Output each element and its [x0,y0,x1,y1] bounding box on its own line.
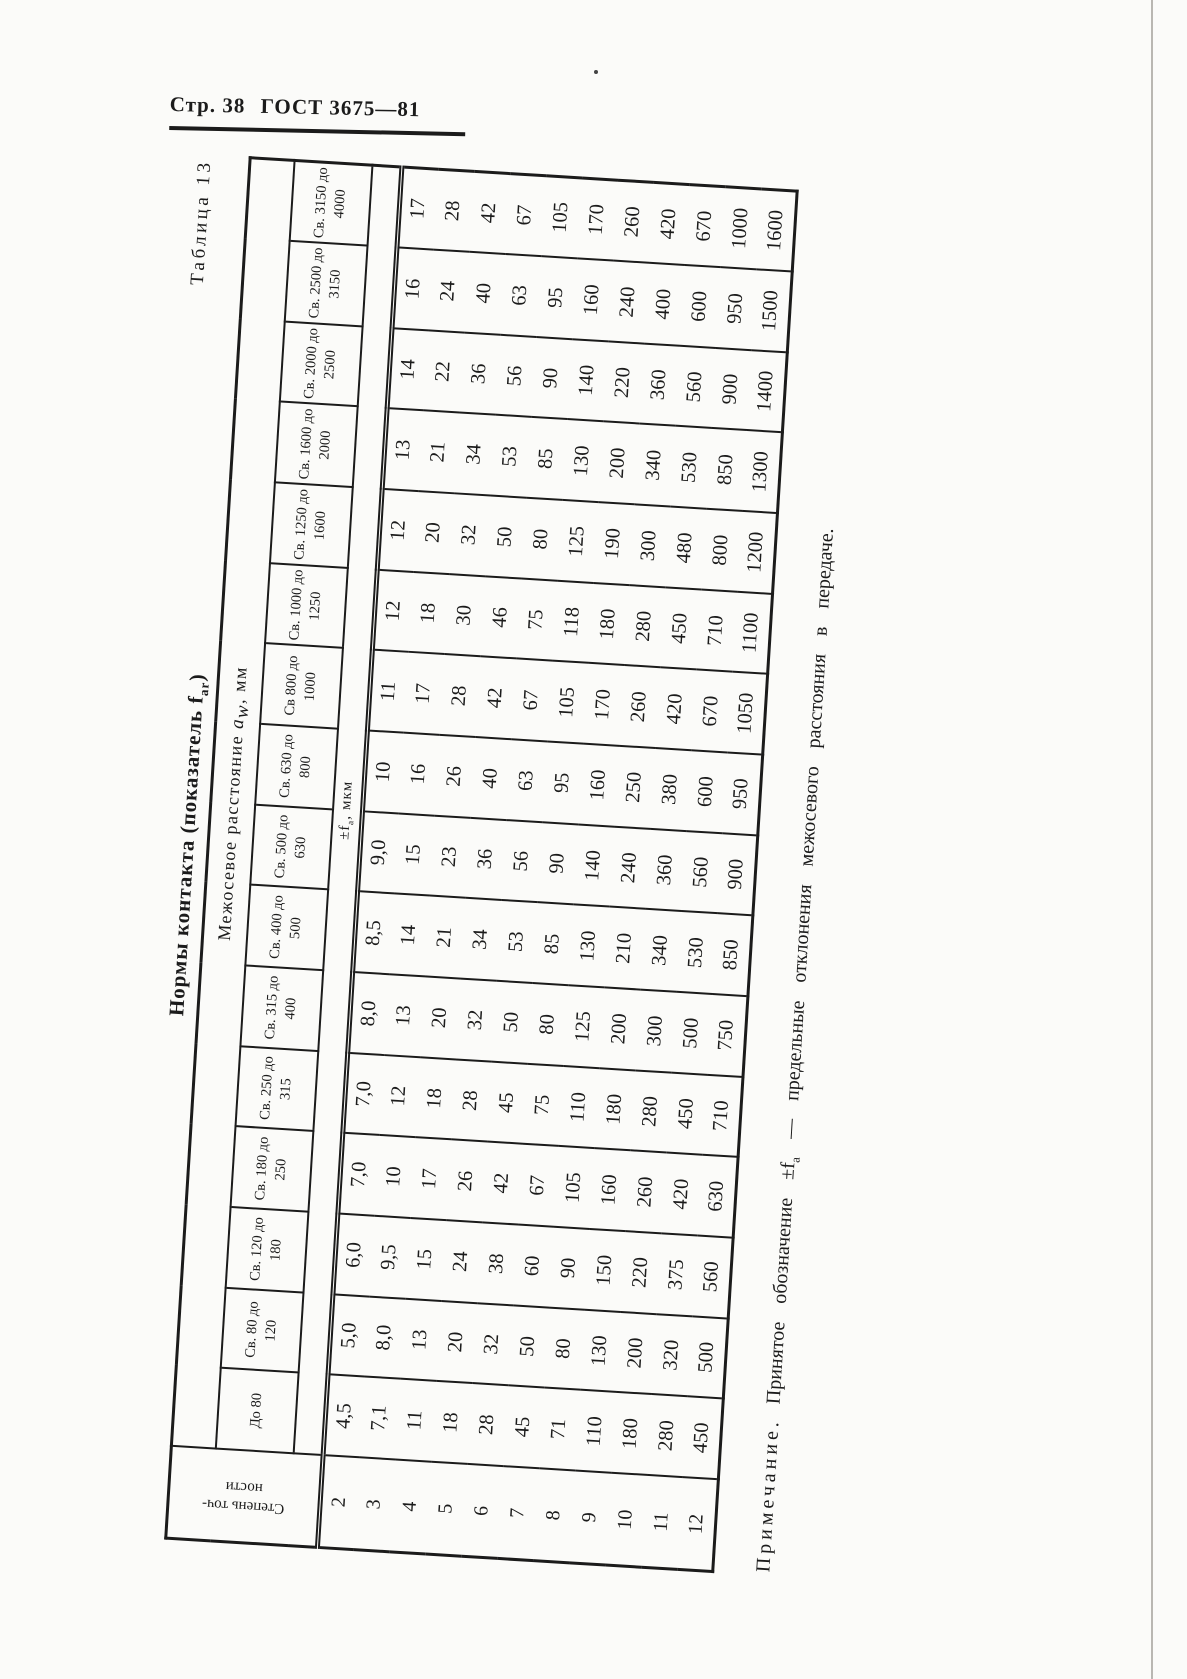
column-header: Св. 1250 до 1600 [269,482,352,567]
deviation-value: 200 [615,1312,656,1395]
deviation-value: 1100 [732,591,773,674]
deviation-value: 1400 [746,350,787,433]
deviation-value: 10 [374,1135,415,1218]
deviation-value: 28 [439,654,480,737]
deviation-value: 85 [526,417,567,500]
deviation-value: 200 [598,422,639,505]
scan-edge-line [1151,0,1153,1679]
deviation-value: 950 [722,753,763,836]
deviation-value: 400 [644,263,685,346]
column-header: Св. 120 до 180 [225,1207,308,1292]
deviation-value: 190 [593,502,634,585]
deviation-value: 28 [467,1383,508,1466]
deviation-value: 850 [712,914,753,997]
deviation-value: 50 [508,1305,549,1388]
deviation-value: 38 [477,1222,518,1305]
deviation-value: 450 [660,587,701,670]
deviation-value: 11 [367,650,408,733]
deviation-value: 56 [501,820,542,903]
deviation-value: 53 [490,415,531,498]
degree-of-accuracy: 12 [677,1477,719,1572]
deviation-value: 1500 [751,269,792,352]
deviation-value: 630 [697,1155,738,1238]
deviation-value: 17 [397,167,438,250]
deviation-value: 13 [400,1298,441,1381]
deviation-value: 95 [542,742,583,825]
deviation-value: 340 [640,909,681,992]
contact-norms-table: Степень точ-ности Межосевое расстояние a… [164,156,799,1573]
deviation-value: 7,0 [338,1133,379,1216]
deviation-value: 26 [434,735,475,818]
deviation-value: 160 [578,744,619,827]
deviation-value: 50 [485,496,526,579]
table-title-subscript: ar [196,681,212,696]
deviation-value: 6,0 [333,1214,374,1297]
deviation-value: 20 [413,491,454,574]
deviation-value: 24 [428,250,469,333]
deviation-value: 500 [671,992,712,1075]
column-header: Св. 80 до 120 [220,1287,303,1372]
deviation-value: 560 [675,346,716,429]
deviation-value: 125 [563,985,604,1068]
deviation-value: 670 [684,185,725,268]
deviation-value: 67 [511,659,552,742]
deviation-value: 46 [480,576,521,659]
deviation-value: 42 [469,171,510,254]
deviation-value: 12 [377,489,418,572]
deviation-value: 250 [614,746,655,829]
degree-of-accuracy: 4 [389,1459,431,1554]
note-label: Примечание. [752,1417,783,1572]
deviation-value: 320 [651,1314,692,1397]
variable-aw: a [227,717,249,729]
deviation-value: 560 [692,1236,733,1319]
deviation-value: 710 [702,1075,743,1158]
deviation-value: 90 [531,337,572,420]
deviation-value: 300 [635,990,676,1073]
degree-of-accuracy: 5 [425,1462,467,1557]
page-header: Стр. 38 ГОСТ 3675—81 [169,92,420,122]
deviation-value: 210 [604,907,645,990]
deviation-value: 14 [387,328,428,411]
column-header: Св. 500 до 630 [250,804,333,889]
deviation-value: 360 [639,343,680,426]
deviation-value: 160 [572,258,613,341]
deviation-value: 180 [611,1392,652,1475]
deviation-value: 260 [619,665,660,748]
deviation-value: 7,1 [359,1377,400,1460]
deviation-value: 63 [500,254,541,337]
deviation-value: 280 [624,585,665,668]
deviation-value: 500 [687,1316,728,1399]
deviation-value: 420 [655,668,696,751]
deviation-value: 118 [552,581,593,664]
deviation-value: 32 [449,493,490,576]
deviation-value: 21 [418,411,459,494]
deviation-value: 67 [505,174,546,257]
deviation-value: 450 [666,1072,707,1155]
deviation-value: 125 [557,500,598,583]
deviation-value: 170 [583,663,624,746]
deviation-value: 63 [506,739,547,822]
degree-of-accuracy: 8 [533,1468,575,1563]
deviation-value: 4,5 [323,1375,364,1458]
deviation-value: 14 [389,894,430,977]
deviation-value: 34 [454,413,495,496]
deviation-value: 42 [475,657,516,740]
deviation-value: 240 [608,261,649,344]
deviation-value: 420 [648,182,689,265]
deviation-value: 360 [645,829,686,912]
deviation-value: 28 [451,1059,492,1142]
unit-symbol: ±f [336,824,353,840]
deviation-value: 1000 [720,187,761,270]
deviation-value: 67 [518,1144,559,1227]
rotated-table-area: Таблица 13 Нормы контакта (показатель fa… [108,149,931,1582]
deviation-value: 95 [536,256,577,339]
deviation-value: 50 [491,981,532,1064]
deviation-value: 8,0 [364,1296,405,1379]
deviation-value: 80 [521,498,562,581]
note-text-end: — предельные отклонения межосевого расст… [778,528,838,1158]
deviation-value: 105 [553,1146,594,1229]
deviation-value: 170 [577,178,618,261]
group-header-text: Межосевое расстояние [214,728,247,941]
deviation-value: 130 [568,905,609,988]
deviation-value: 9,5 [369,1216,410,1299]
deviation-value: 22 [423,330,464,413]
table-body: 24,55,06,07,07,08,08,59,0101112121314161… [317,167,797,1572]
deviation-value: 375 [656,1233,697,1316]
deviation-value: 17 [403,652,444,735]
deviation-value: 20 [436,1301,477,1384]
deviation-value: 105 [547,661,588,744]
stub-header-line2: ности [225,1478,263,1496]
deviation-value: 180 [594,1068,635,1151]
variable-aw-subscript: w [232,703,254,718]
column-header: Св. 250 до 315 [235,1046,318,1131]
column-header: Св. 3150 до 4000 [289,160,372,245]
column-header: Св. 1600 до 2000 [274,402,357,487]
deviation-value: 420 [661,1153,702,1236]
deviation-value: 75 [516,578,557,661]
deviation-value: 12 [372,570,413,653]
degree-of-accuracy: 7 [497,1466,539,1561]
deviation-value: 280 [647,1394,688,1477]
deviation-value: 280 [630,1070,671,1153]
column-header: До 80 [215,1368,298,1453]
deviation-value: 380 [650,748,691,831]
deviation-value: 26 [446,1140,487,1223]
deviation-value: 21 [425,896,466,979]
deviation-value: 40 [464,252,505,335]
stub-header-line1: Степень точ- [202,1496,285,1517]
degree-of-accuracy: 2 [317,1455,359,1550]
degree-of-accuracy: 10 [605,1473,647,1568]
deviation-value: 30 [444,574,485,657]
deviation-value: 140 [573,824,614,907]
deviation-value: 60 [513,1225,554,1308]
deviation-value: 130 [562,419,603,502]
deviation-value: 950 [715,267,756,350]
deviation-value: 36 [465,818,506,901]
column-header: Св. 1000 до 1250 [265,563,348,648]
deviation-value: 220 [603,341,644,424]
deviation-value: 90 [537,822,578,905]
deviation-value: 71 [539,1388,580,1471]
column-header: Св. 180 до 250 [230,1126,313,1211]
deviation-value: 45 [487,1061,528,1144]
deviation-value: 8,5 [353,892,394,975]
deviation-value: 12 [379,1055,420,1138]
deviation-value: 450 [682,1397,723,1480]
column-header: Св. 400 до 500 [245,885,328,970]
deviation-value: 1200 [737,511,778,594]
deviation-value: 32 [456,979,497,1062]
deviation-value: 17 [410,1137,451,1220]
deviation-value: 24 [441,1220,482,1303]
note-subscript: a [788,1157,802,1163]
deviation-value: 160 [589,1148,630,1231]
deviation-value: 260 [613,180,654,263]
deviation-value: 900 [711,348,752,431]
deviation-value: 15 [394,813,435,896]
deviation-value: 13 [382,409,423,492]
deviation-value: 56 [495,335,536,418]
deviation-value: 18 [431,1381,472,1464]
deviation-value: 300 [629,504,670,587]
deviation-value: 7,0 [343,1053,384,1136]
deviation-value: 75 [522,1064,563,1147]
deviation-value: 45 [503,1386,544,1469]
deviation-value: 600 [686,750,727,833]
deviation-value: 5,0 [328,1294,369,1377]
deviation-value: 240 [609,826,650,909]
standard-number: ГОСТ 3675—81 [260,94,420,121]
deviation-value: 1600 [756,189,797,272]
deviation-value: 85 [532,903,573,986]
deviation-value: 710 [696,589,737,672]
accuracy-grade-header: Степень точ-ности [198,1475,290,1518]
deviation-value: 34 [460,898,501,981]
deviation-value: 340 [634,424,675,507]
deviation-value: 105 [541,176,582,259]
deviation-value: 900 [717,833,758,916]
deviation-value: 28 [433,169,474,252]
deviation-value: 480 [665,507,706,590]
note-text: Принятое обозначение ±f [763,1162,800,1405]
column-header: Св 800 до 1000 [260,643,343,728]
deviation-value: 750 [707,994,748,1077]
deviation-value: 40 [470,737,511,820]
column-header: Св. 630 до 800 [255,724,338,809]
deviation-value: 260 [625,1151,666,1234]
deviation-value: 53 [496,900,537,983]
deviation-value: 15 [405,1218,446,1301]
degree-of-accuracy: 9 [569,1470,611,1565]
deviation-value: 20 [420,976,461,1059]
scanned-document-page: { "page": { "header_left": "Стр. 38", "h… [0,0,1187,1679]
deviation-value: 13 [384,974,425,1057]
group-header-unit: , мм [228,665,250,704]
deviation-value: 23 [429,815,470,898]
deviation-value: 18 [415,1057,456,1140]
deviation-value: 530 [676,911,717,994]
deviation-value: 9,0 [358,811,399,894]
degree-of-accuracy: 6 [461,1464,503,1559]
stub-header-cell: Степень точ-ности [166,1446,323,1548]
header-rule [169,126,465,136]
deviation-value: 1300 [742,430,783,513]
table-title-close: ) [185,672,209,681]
column-header: Св. 315 до 400 [240,965,323,1050]
degree-of-accuracy: 11 [641,1475,683,1570]
deviation-value: 32 [472,1303,513,1386]
rotated-content-tilt: Таблица 13 Нормы контакта (показатель fa… [108,149,931,1582]
deviation-value: 530 [670,426,711,509]
deviation-value: 8,0 [348,972,389,1055]
deviation-value: 80 [544,1307,585,1390]
deviation-value: 670 [691,670,732,753]
deviation-value: 800 [701,509,742,592]
deviation-value: 220 [620,1231,661,1314]
deviation-value: 42 [482,1142,523,1225]
unit-subscript: a [346,820,356,826]
unit-name: , мкм [338,780,356,820]
deviation-value: 200 [599,987,640,1070]
deviation-value: 180 [588,583,629,666]
deviation-value: 110 [558,1066,599,1149]
deviation-value: 18 [408,572,449,655]
deviation-value: 16 [392,247,433,330]
deviation-value: 110 [575,1390,616,1473]
deviation-value: 150 [584,1229,625,1312]
deviation-value: 36 [459,332,500,415]
deviation-value: 140 [567,339,608,422]
degree-of-accuracy: 3 [353,1457,395,1552]
page-number: Стр. 38 [169,92,245,118]
deviation-value: 80 [527,983,568,1066]
deviation-value: 10 [363,731,404,814]
deviation-value: 11 [395,1379,436,1462]
deviation-value: 850 [706,428,747,511]
deviation-value: 560 [681,831,722,914]
deviation-value: 600 [680,265,721,348]
scan-artifact-dot [594,70,598,74]
deviation-value: 1050 [727,672,768,755]
column-header: Св. 2500 до 3150 [284,241,367,326]
deviation-value: 16 [398,733,439,816]
column-header: Св. 2000 до 2500 [279,321,362,406]
deviation-value: 130 [580,1309,621,1392]
deviation-value: 90 [549,1227,590,1310]
